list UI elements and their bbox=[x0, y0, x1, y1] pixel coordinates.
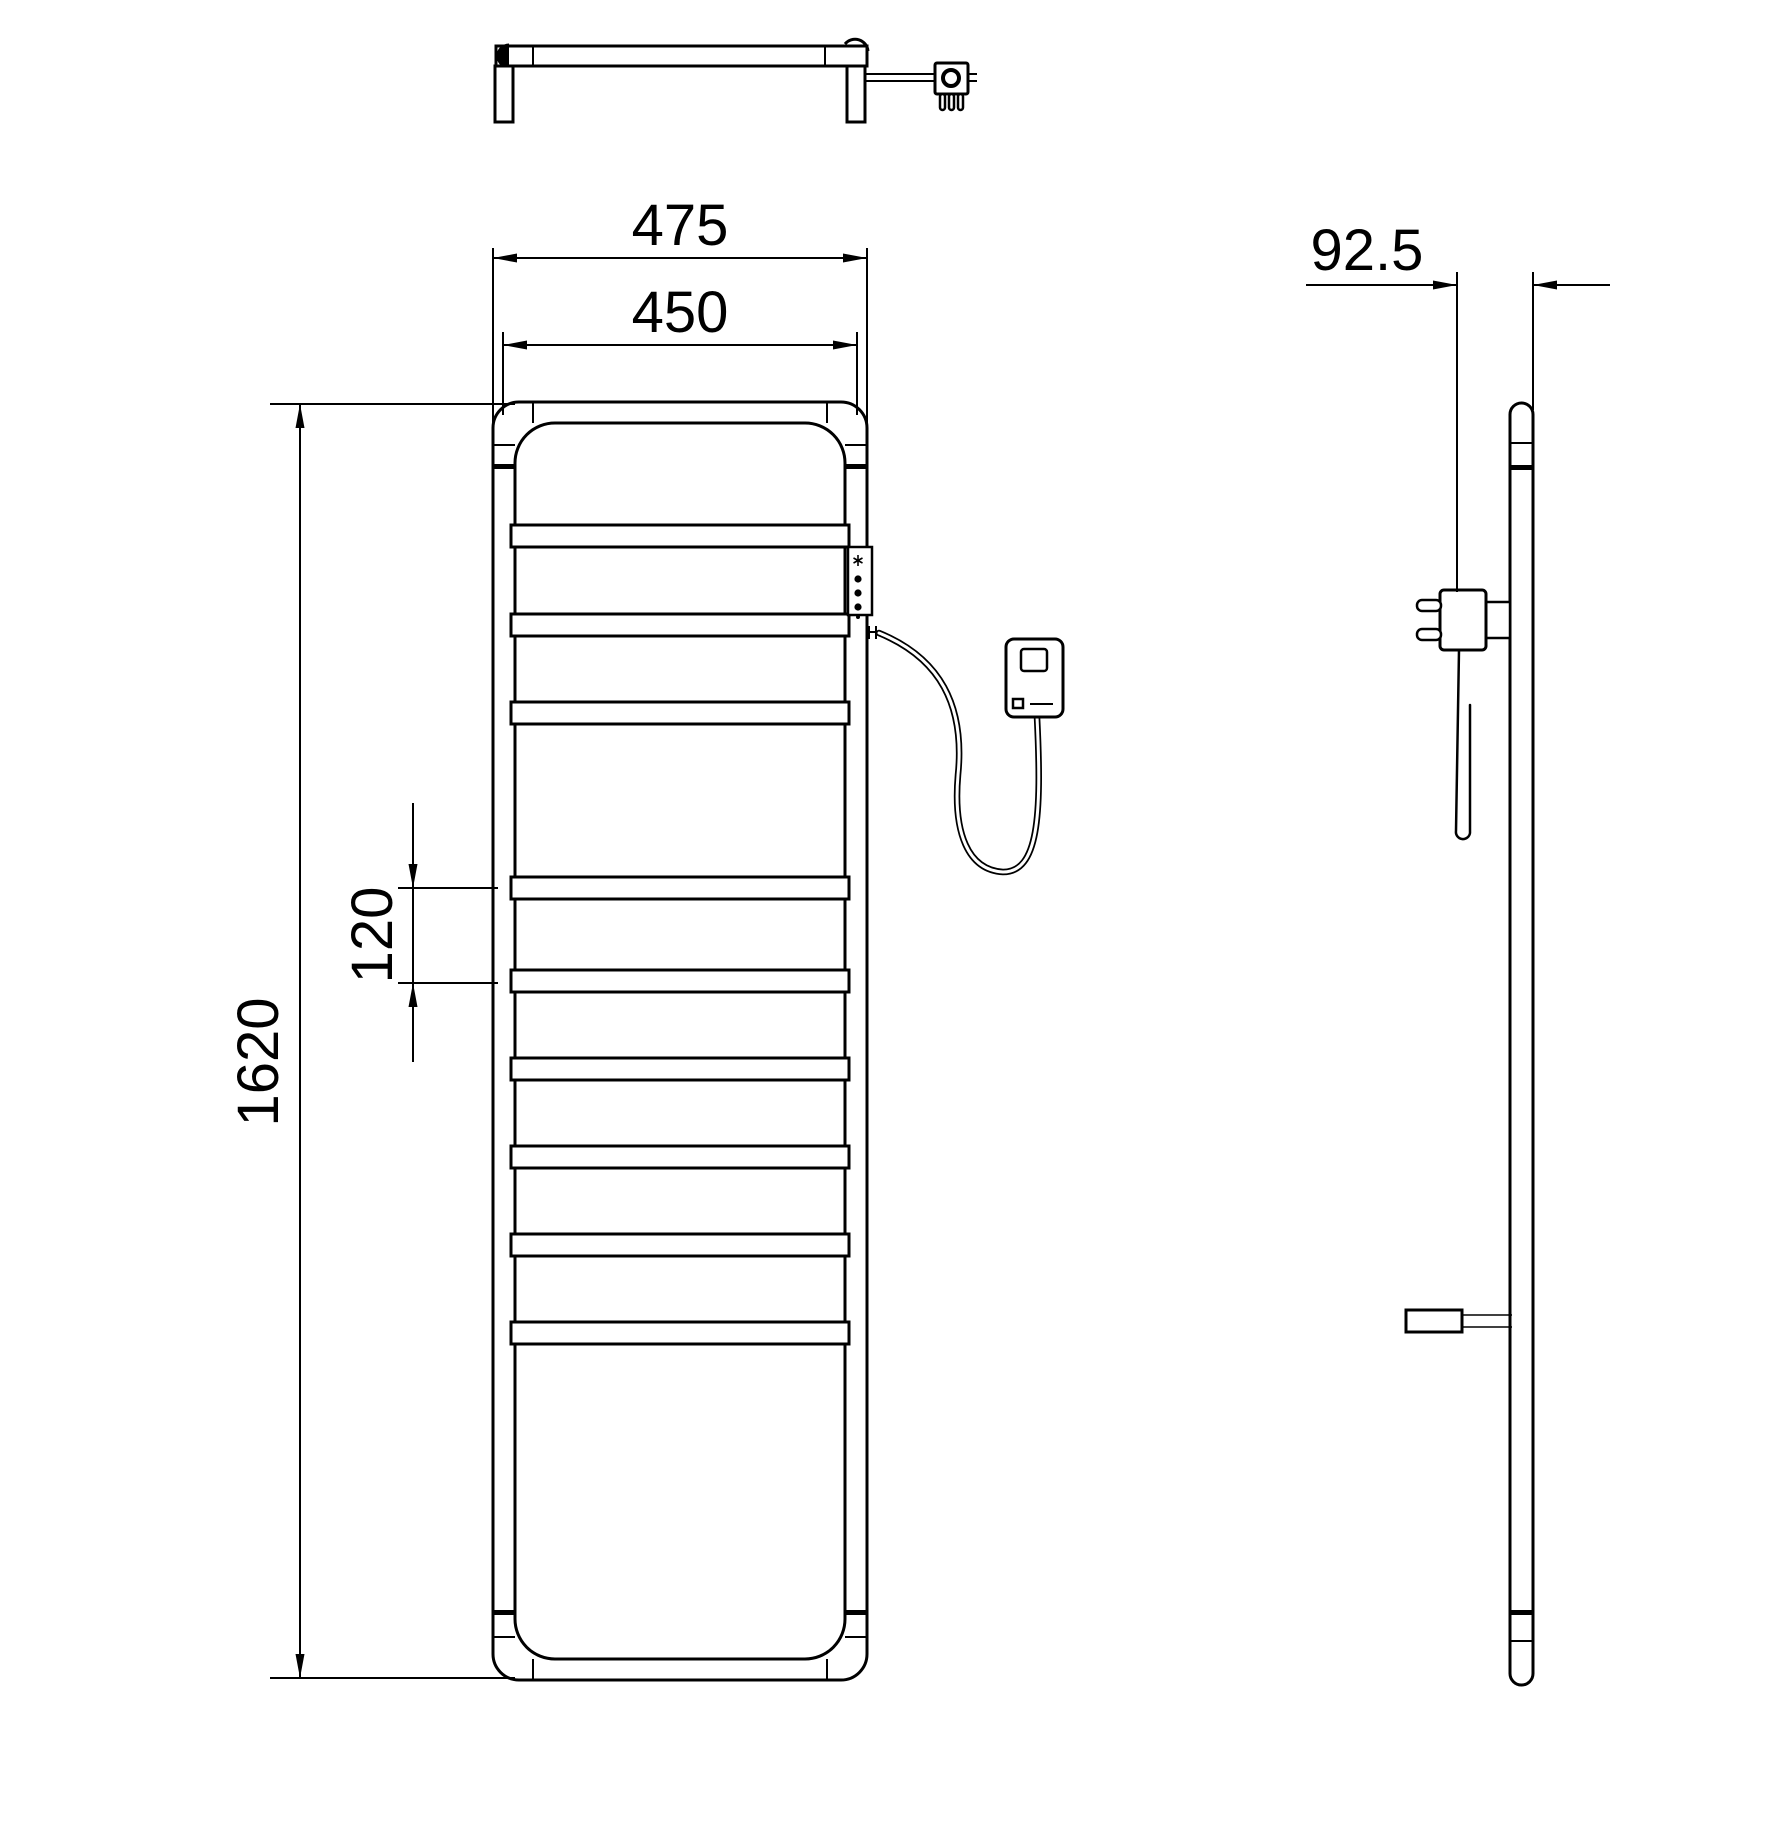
rail-rung bbox=[511, 1146, 849, 1168]
dim-overall-height: 1620 bbox=[226, 404, 515, 1678]
dimension-annotations: 475 450 1620 12 bbox=[226, 193, 1610, 1678]
arrowhead-up bbox=[409, 983, 418, 1007]
side-plug-body bbox=[1440, 590, 1486, 650]
dim-depth: 92.5 bbox=[1306, 218, 1610, 592]
arrowhead-right bbox=[843, 254, 867, 263]
side-plug-prong bbox=[1417, 629, 1441, 640]
rail-rung bbox=[511, 877, 849, 899]
technical-drawing-canvas: 475 450 1620 12 bbox=[0, 0, 1776, 1843]
top-view-left-leg bbox=[495, 66, 513, 122]
top-view-plug-circle bbox=[943, 70, 959, 86]
side-wall-bracket bbox=[1406, 1310, 1512, 1332]
dim-label-top-bar-width: 450 bbox=[632, 280, 729, 345]
rail-rung bbox=[511, 1058, 849, 1080]
rail-rung bbox=[511, 614, 849, 636]
control-panel bbox=[848, 547, 872, 619]
side-power-entry bbox=[1484, 602, 1510, 638]
frame-joint-mark bbox=[845, 464, 867, 469]
arrowhead-left bbox=[493, 254, 517, 263]
arrowhead-left bbox=[503, 341, 527, 350]
frame-joint-mark bbox=[845, 1610, 867, 1615]
dim-rung-spacing: 120 bbox=[340, 803, 498, 1062]
dim-top-bar-width: 450 bbox=[503, 280, 857, 415]
top-view-plug-prong bbox=[958, 94, 963, 110]
plug-inner-window bbox=[1021, 649, 1047, 671]
top-view-right-leg bbox=[847, 66, 865, 122]
side-joint-mark bbox=[1510, 1610, 1533, 1615]
rail-rung bbox=[511, 1322, 849, 1344]
dim-label-depth: 92.5 bbox=[1311, 218, 1424, 283]
arrowhead-down bbox=[409, 864, 418, 888]
top-view-plug-prong bbox=[940, 94, 945, 110]
arrowhead-left bbox=[1533, 281, 1557, 290]
rail-rung bbox=[511, 702, 849, 724]
led-dot-small bbox=[856, 615, 860, 619]
led-dot bbox=[854, 575, 861, 582]
front-view bbox=[493, 402, 1063, 1680]
front-frame-inner bbox=[515, 423, 845, 1659]
power-plug-front bbox=[1006, 639, 1063, 717]
led-dot bbox=[854, 589, 861, 596]
side-view bbox=[1406, 403, 1533, 1685]
top-view-plug-prong bbox=[949, 94, 954, 110]
rail-rung bbox=[511, 525, 849, 547]
dim-label-overall-height: 1620 bbox=[226, 997, 291, 1126]
rail-rung bbox=[511, 1234, 849, 1256]
frame-joint-mark bbox=[493, 464, 515, 469]
top-view-bar bbox=[496, 46, 867, 66]
side-plug-assembly bbox=[1417, 590, 1510, 650]
arrowhead-right bbox=[833, 341, 857, 350]
side-tube bbox=[1510, 403, 1533, 1685]
arrowhead-up bbox=[296, 404, 305, 428]
arrowhead-down bbox=[296, 1654, 305, 1678]
dim-label-rung-spacing: 120 bbox=[340, 887, 405, 984]
arrowhead-right bbox=[1433, 281, 1457, 290]
dim-label-overall-width: 475 bbox=[632, 193, 729, 258]
frame-joint-mark bbox=[493, 1610, 515, 1615]
side-plug-prong bbox=[1417, 600, 1441, 611]
rail-rung bbox=[511, 970, 849, 992]
bracket-plate bbox=[1406, 1310, 1462, 1332]
led-dot bbox=[854, 603, 861, 610]
side-joint-mark bbox=[1510, 465, 1533, 470]
plug-indicator bbox=[1013, 699, 1023, 708]
side-hanging-cord bbox=[1456, 650, 1470, 839]
top-view bbox=[495, 39, 977, 122]
towel-rail-drawing: 475 450 1620 12 bbox=[0, 0, 1776, 1843]
